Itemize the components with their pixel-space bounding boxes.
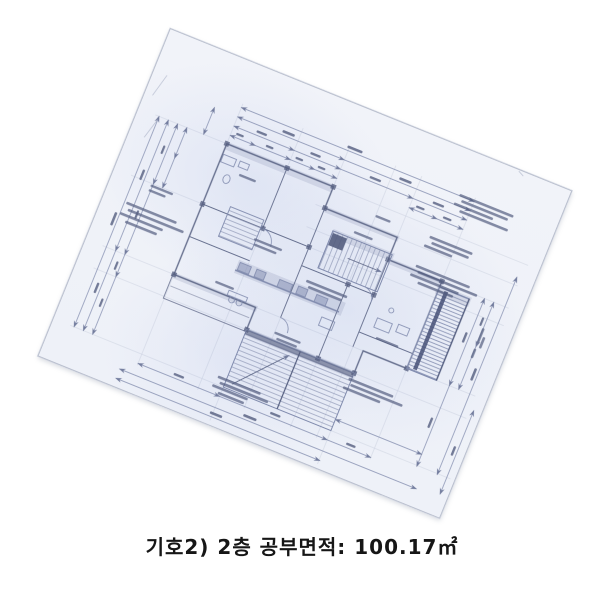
scanned-floorplan-page: [37, 28, 572, 519]
caption-text: 기호2) 2층 공부면적: 100.17㎡: [0, 531, 604, 560]
louver-balcony: [407, 287, 470, 381]
floorplan-drawing: [39, 29, 571, 517]
screenshot-canvas: 기호2) 2층 공부면적: 100.17㎡: [0, 0, 604, 600]
